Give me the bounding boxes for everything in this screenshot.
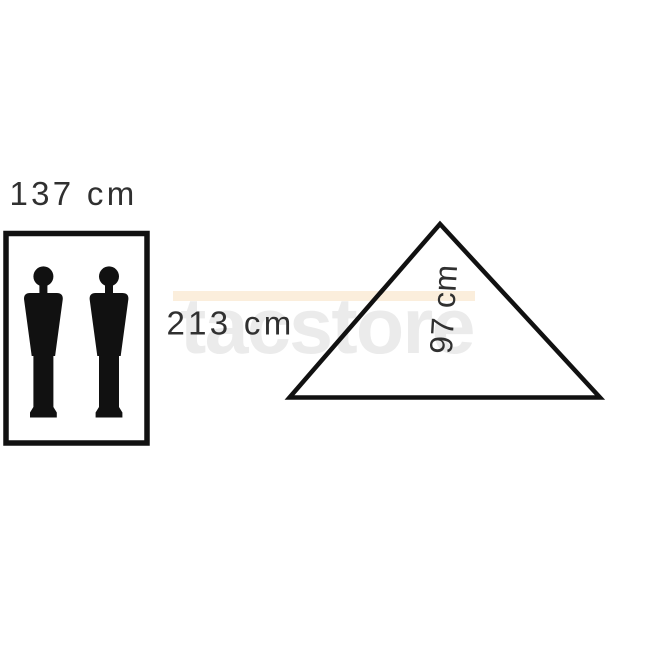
svg-text:97 cm: 97 cm <box>423 263 464 355</box>
svg-text:137 cm: 137 cm <box>10 175 138 212</box>
svg-text:213 cm: 213 cm <box>167 305 295 342</box>
